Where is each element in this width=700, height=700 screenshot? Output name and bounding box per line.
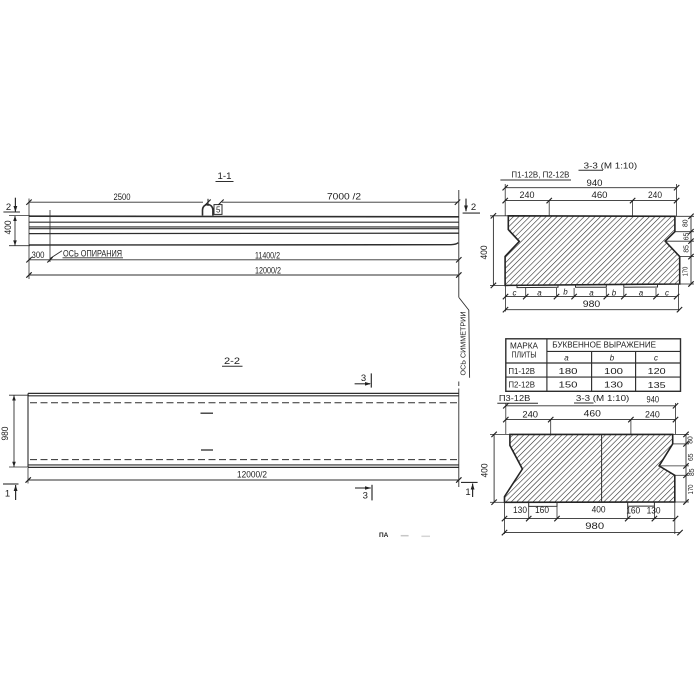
svg-text:980: 980 (0, 427, 10, 441)
svg-text:80: 80 (686, 436, 695, 444)
svg-text:ПЛИТЫ: ПЛИТЫ (512, 351, 537, 360)
svg-text:940: 940 (647, 394, 660, 404)
svg-text:2: 2 (6, 202, 11, 213)
svg-text:БУКВЕННОЕ ВЫРАЖЕНИЕ: БУКВЕННОЕ ВЫРАЖЕНИЕ (552, 340, 656, 349)
svg-text:2-2: 2-2 (224, 356, 240, 367)
svg-text:240: 240 (648, 190, 662, 200)
svg-text:2500: 2500 (114, 192, 131, 202)
svg-text:П3-12В: П3-12В (499, 393, 531, 403)
svg-text:П2-12В: П2-12В (508, 380, 535, 389)
svg-text:3-3 (М 1:10): 3-3 (М 1:10) (576, 393, 630, 403)
svg-text:c: c (665, 288, 669, 297)
svg-text:1: 1 (465, 487, 470, 498)
svg-text:240: 240 (520, 190, 535, 200)
svg-text:160: 160 (535, 505, 549, 515)
svg-text:240: 240 (522, 409, 538, 419)
svg-text:b: b (610, 353, 615, 362)
svg-text:135: 135 (648, 381, 667, 390)
svg-text:12000/2: 12000/2 (237, 470, 267, 480)
svg-text:3: 3 (363, 490, 368, 501)
svg-text:180: 180 (559, 367, 579, 376)
svg-text:400: 400 (592, 504, 606, 514)
svg-text:a: a (564, 353, 569, 362)
svg-text:65: 65 (686, 453, 695, 461)
svg-text:12000/2: 12000/2 (255, 265, 281, 275)
svg-text:150: 150 (559, 380, 579, 389)
svg-text:11400/2: 11400/2 (255, 251, 280, 261)
svg-text:300: 300 (32, 250, 45, 260)
svg-text:a: a (589, 288, 594, 297)
svg-text:7000 /2: 7000 /2 (327, 192, 361, 202)
svg-text:400: 400 (480, 464, 490, 478)
svg-text:980: 980 (583, 299, 601, 309)
svg-text:80: 80 (681, 219, 690, 227)
svg-text:2: 2 (471, 202, 476, 213)
svg-text:c: c (513, 289, 517, 298)
svg-text:b: b (612, 288, 617, 297)
svg-text:a: a (537, 288, 542, 297)
svg-text:400: 400 (3, 221, 13, 235)
svg-text:85: 85 (687, 468, 696, 476)
svg-text:160: 160 (626, 506, 640, 516)
svg-text:ОСЬ СИММЕТРИИ: ОСЬ СИММЕТРИИ (458, 312, 467, 376)
svg-text:940: 940 (587, 178, 603, 188)
svg-text:130: 130 (647, 506, 661, 516)
svg-text:3-3 (М 1:10): 3-3 (М 1:10) (584, 160, 638, 170)
svg-text:ОСЬ ОПИРАНИЯ: ОСЬ ОПИРАНИЯ (63, 248, 122, 258)
svg-text:170: 170 (686, 485, 695, 495)
svg-text:ПА: ПА (379, 532, 389, 539)
svg-text:a: a (639, 288, 644, 297)
svg-text:П1-12В: П1-12В (508, 367, 535, 376)
svg-text:460: 460 (584, 408, 601, 418)
svg-text:170: 170 (681, 267, 690, 277)
svg-text:400: 400 (479, 246, 489, 260)
svg-text:130: 130 (513, 505, 527, 515)
svg-text:130: 130 (604, 380, 624, 389)
svg-text:1: 1 (5, 489, 10, 500)
svg-text:П1-12В, П2-12В: П1-12В, П2-12В (511, 170, 569, 180)
svg-text:100: 100 (604, 367, 624, 376)
svg-text:460: 460 (592, 190, 608, 200)
svg-text:65: 65 (682, 233, 691, 241)
svg-text:1-1: 1-1 (218, 171, 232, 182)
svg-text:МАРКА: МАРКА (510, 341, 539, 350)
svg-text:85: 85 (682, 245, 691, 253)
svg-text:120: 120 (648, 367, 667, 376)
svg-text:240: 240 (645, 409, 660, 419)
svg-text:980: 980 (585, 521, 604, 531)
svg-text:3: 3 (361, 373, 366, 384)
svg-text:b: b (563, 288, 568, 297)
svg-text:c: c (654, 353, 658, 362)
svg-text:5: 5 (216, 206, 221, 215)
